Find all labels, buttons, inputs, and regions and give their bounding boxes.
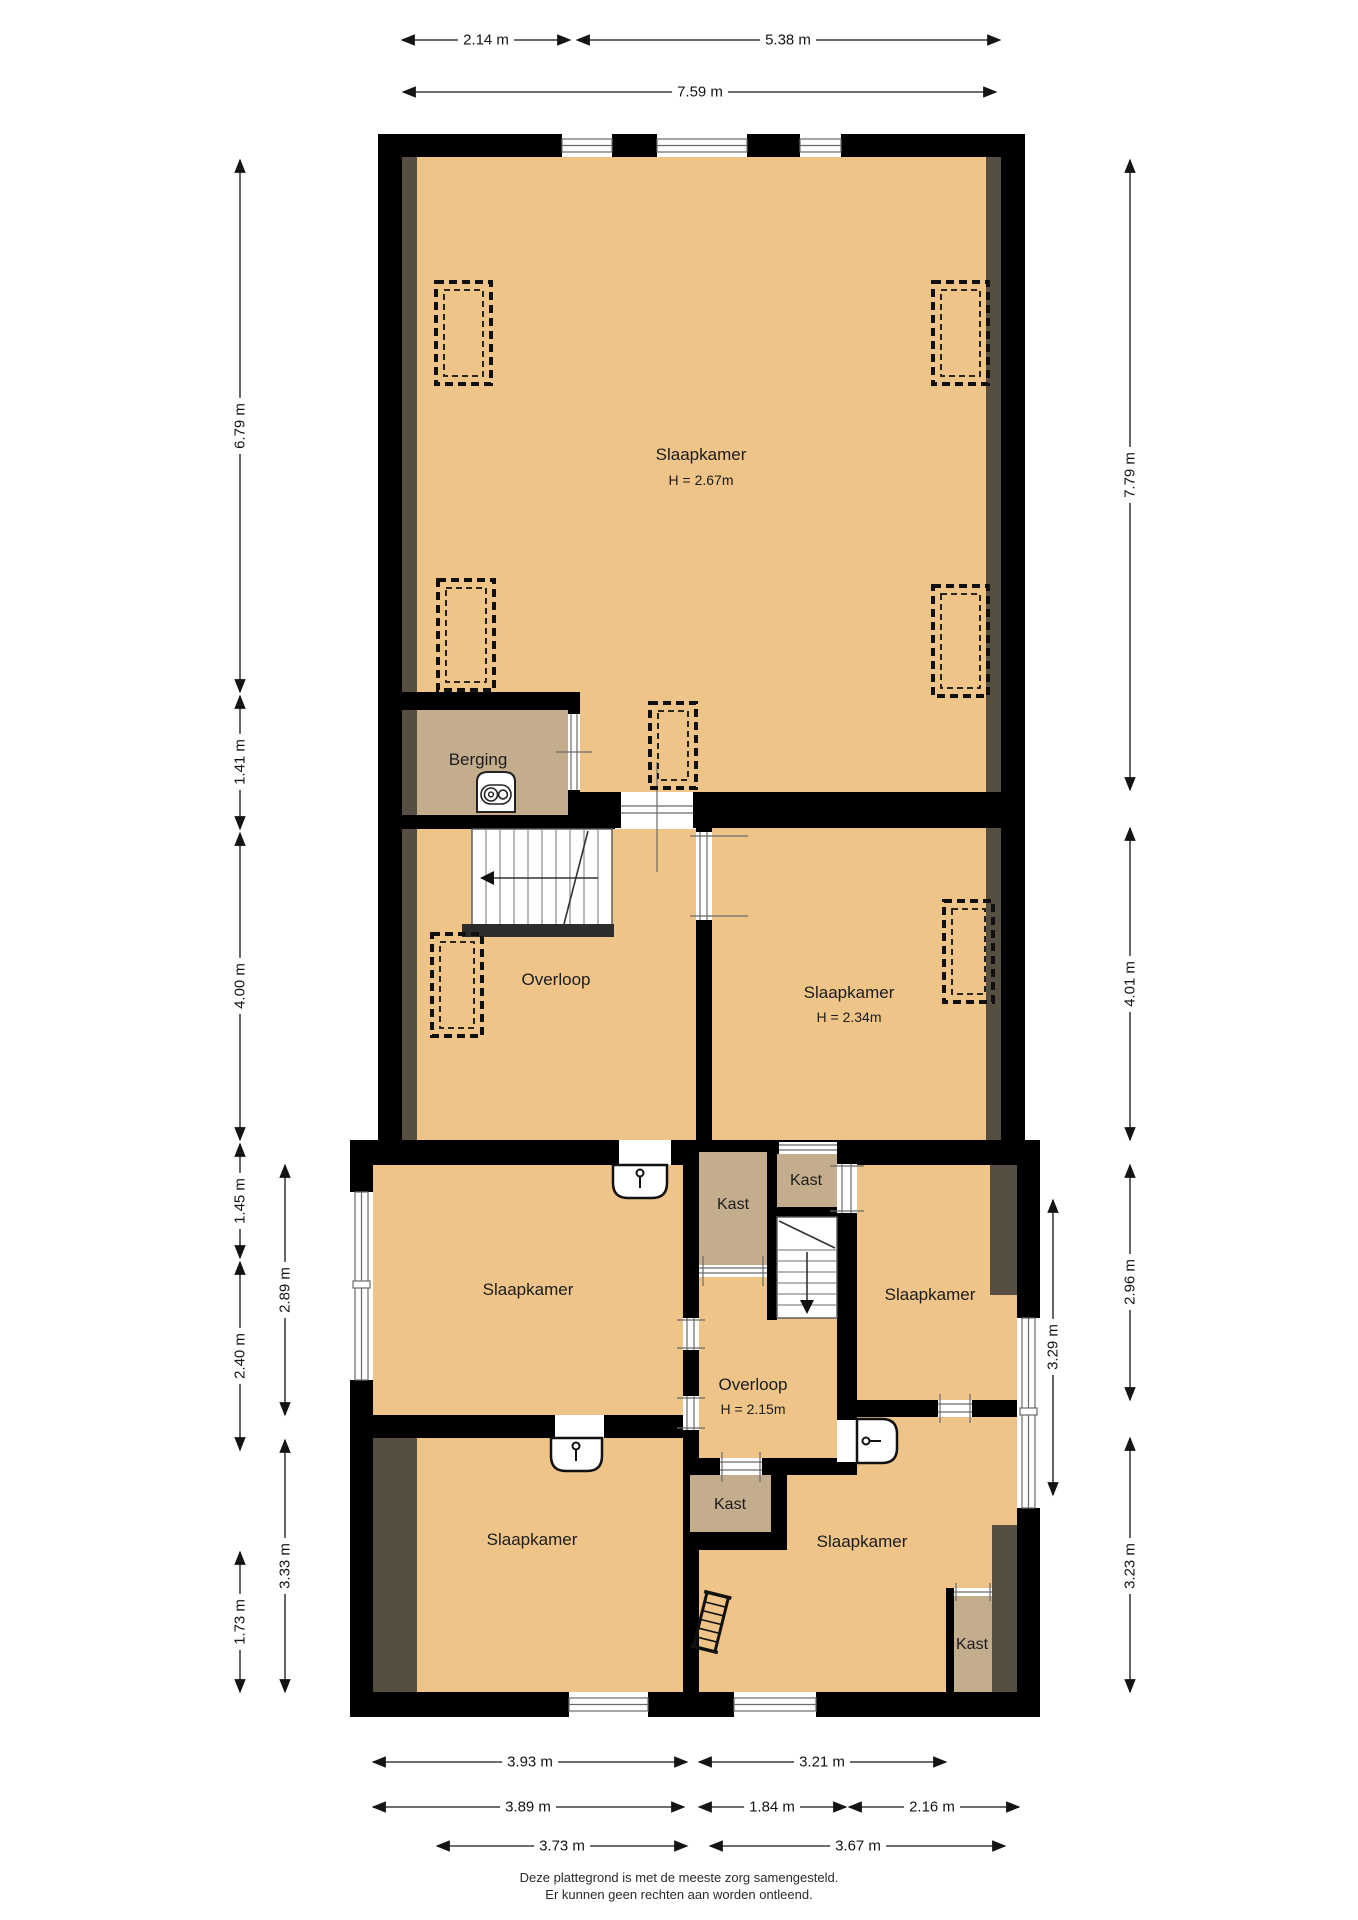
door-frame — [779, 1142, 837, 1154]
dim-right-outer-3: 2.96 m — [1122, 1254, 1139, 1310]
window-icon — [800, 134, 841, 157]
dim-top-1: 2.14 m — [458, 32, 514, 49]
dim-right-outer-1: 7.79 m — [1122, 447, 1139, 503]
window-icon — [1017, 1318, 1040, 1508]
room-label-kast-top-right: Kast — [790, 1172, 822, 1190]
window-icon — [734, 1692, 816, 1717]
room-label-slaapkamer-right-mid: Slaapkamer — [804, 983, 895, 1003]
dim-left-inner-1: 2.89 m — [277, 1262, 294, 1318]
room-label-slaapkamer-upper-left: Slaapkamer — [483, 1280, 574, 1300]
room-label-slaapkamer-right: Slaapkamer — [885, 1285, 976, 1305]
dim-left-outer-5: 2.40 m — [232, 1328, 249, 1384]
room-label-kast-lower-right: Kast — [956, 1636, 988, 1654]
dim-bottom-r3-1: 3.73 m — [534, 1838, 590, 1855]
boiler-icon — [477, 772, 515, 812]
room-height-slaapkamer-right-mid: H = 2.34m — [817, 1009, 882, 1025]
stairs-up-icon — [462, 829, 614, 937]
dim-right-outer-4: 3.23 m — [1122, 1538, 1139, 1594]
dim-left-outer-3: 4.00 m — [232, 958, 249, 1014]
room-label-overloop-mid: Overloop — [522, 970, 591, 990]
room-label-slaapkamer-lower-right: Slaapkamer — [817, 1532, 908, 1552]
room-label-kast-lower-middle: Kast — [714, 1496, 746, 1514]
room-height-overloop-lower: H = 2.15m — [721, 1401, 786, 1417]
floorplan-page: Slaapkamer H = 2.67m Berging Overloop Sl… — [0, 0, 1358, 1920]
window-icon — [562, 134, 612, 157]
stairs-down-icon — [777, 1217, 837, 1318]
dim-bottom-r1-2: 3.21 m — [794, 1754, 850, 1771]
dim-left-inner-2: 3.33 m — [277, 1538, 294, 1594]
footer-disclaimer-line1: Deze plattegrond is met de meeste zorg s… — [0, 1870, 1358, 1885]
door-with-key-icon — [857, 1419, 897, 1463]
dim-left-outer-2: 1.41 m — [232, 734, 249, 790]
door-with-key-icon — [613, 1165, 667, 1198]
room-label-overloop-lower: Overloop — [719, 1375, 788, 1395]
dim-bottom-r2-2: 1.84 m — [744, 1799, 800, 1816]
floorplan-canvas — [0, 0, 1358, 1920]
dim-left-outer-1: 6.79 m — [232, 398, 249, 454]
dim-bottom-r3-2: 3.67 m — [830, 1838, 886, 1855]
room-label-slaapkamer-lower-left: Slaapkamer — [487, 1530, 578, 1550]
dim-left-outer-6: 1.73 m — [232, 1594, 249, 1650]
window-icon — [657, 134, 747, 157]
dim-top-3: 7.59 m — [672, 84, 728, 101]
window-icon — [569, 1692, 648, 1717]
room-label-kast-middle: Kast — [717, 1196, 749, 1214]
dim-right-inner-1: 3.29 m — [1045, 1319, 1062, 1375]
footer-disclaimer-line2: Er kunnen geen rechten aan worden ontlee… — [0, 1887, 1358, 1902]
dim-right-outer-2: 4.01 m — [1122, 956, 1139, 1012]
dim-bottom-r2-1: 3.89 m — [500, 1799, 556, 1816]
room-label-berging: Berging — [449, 750, 508, 770]
dim-top-2: 5.38 m — [760, 32, 816, 49]
room-height-slaapkamer-top: H = 2.67m — [669, 472, 734, 488]
room-label-slaapkamer-top: Slaapkamer — [656, 445, 747, 465]
dim-left-outer-4: 1.45 m — [232, 1173, 249, 1229]
dim-bottom-r2-3: 2.16 m — [904, 1799, 960, 1816]
door-with-key-icon — [551, 1438, 602, 1471]
window-icon — [350, 1192, 373, 1380]
dim-bottom-r1-1: 3.93 m — [502, 1754, 558, 1771]
